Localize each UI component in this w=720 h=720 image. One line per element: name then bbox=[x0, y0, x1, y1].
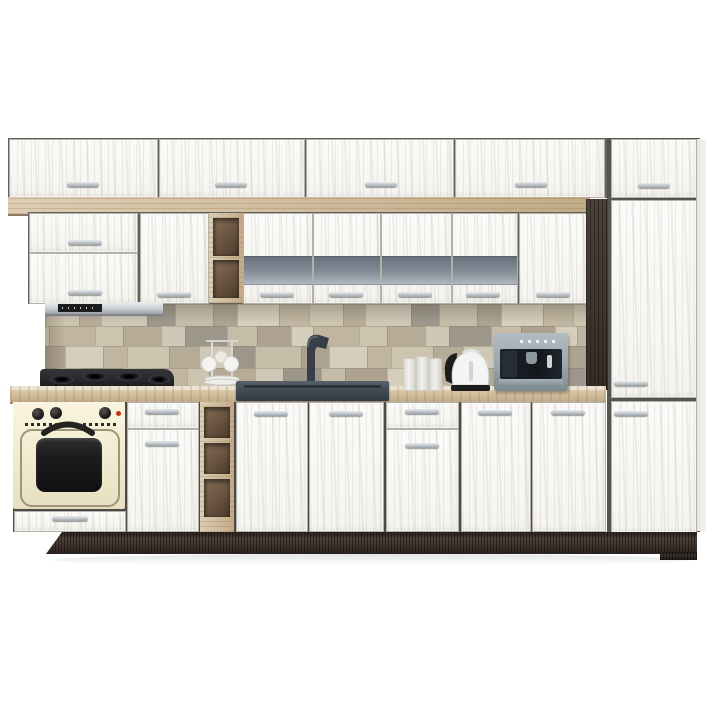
backsplash-tile bbox=[237, 304, 280, 327]
backsplash-tile bbox=[359, 326, 388, 347]
oven-knob bbox=[50, 407, 62, 419]
backsplash-tile bbox=[573, 304, 586, 327]
door-handle bbox=[260, 292, 294, 297]
base-shelf-cubby bbox=[204, 443, 230, 474]
coffee-machine-drip-tray bbox=[499, 379, 563, 386]
backsplash-tile bbox=[411, 304, 440, 327]
backsplash-tile bbox=[343, 304, 366, 327]
base-plain-door bbox=[532, 402, 606, 532]
canister bbox=[416, 356, 429, 391]
door-handle bbox=[405, 409, 439, 414]
coffee-machine-water-tank bbox=[502, 351, 517, 377]
plinth bbox=[46, 532, 697, 554]
door-handle bbox=[551, 410, 585, 415]
sink-cabinet-right-door bbox=[309, 402, 384, 532]
burner bbox=[50, 375, 74, 384]
backsplash-tile bbox=[127, 346, 170, 369]
door-handle bbox=[145, 409, 179, 414]
sink bbox=[236, 381, 389, 401]
door-handle bbox=[478, 410, 512, 415]
door-handle bbox=[68, 290, 102, 295]
backsplash-tile bbox=[387, 326, 426, 347]
upper-cabinet-door-1 bbox=[9, 139, 158, 198]
backsplash-tile bbox=[95, 326, 124, 347]
coffee-machine-group-head bbox=[526, 352, 537, 364]
coffee-machine-buttons bbox=[520, 339, 562, 345]
upper-cabinet-door-4 bbox=[455, 139, 605, 198]
floor-shadow bbox=[52, 554, 692, 566]
door-handle bbox=[398, 292, 432, 297]
door-handle bbox=[638, 183, 670, 188]
door-handle bbox=[254, 411, 288, 416]
oven-knob bbox=[99, 407, 111, 419]
oven-indicator-light bbox=[116, 411, 121, 416]
burner bbox=[82, 372, 108, 381]
door-handle bbox=[365, 182, 397, 187]
base-drawer-front bbox=[386, 402, 459, 429]
glass-insert bbox=[314, 256, 380, 285]
glass-insert bbox=[244, 256, 312, 285]
glass-insert bbox=[453, 256, 517, 285]
door-handle bbox=[614, 381, 648, 386]
burner bbox=[148, 375, 170, 384]
door-handle bbox=[614, 411, 648, 416]
backsplash-tile bbox=[175, 304, 214, 327]
canister bbox=[403, 358, 416, 391]
tall-unit-side-panel bbox=[696, 139, 706, 531]
kitchen-set-photo bbox=[0, 0, 720, 720]
backsplash-tile bbox=[501, 304, 544, 327]
wall-glass-door-2 bbox=[313, 213, 381, 304]
backsplash-tile bbox=[213, 304, 238, 327]
backsplash-tile bbox=[585, 368, 586, 388]
oven-base-drawer bbox=[14, 511, 126, 532]
niche-side-panel bbox=[586, 199, 608, 390]
base-drawer-front bbox=[127, 402, 199, 429]
wall-plain-door bbox=[519, 213, 587, 304]
oven-door-handle bbox=[39, 420, 97, 436]
wall-glass-door-3 bbox=[381, 213, 452, 304]
door-handle bbox=[157, 292, 191, 297]
door-handle bbox=[515, 182, 547, 187]
corner-wall-cabinet-upper-door bbox=[29, 213, 138, 253]
backsplash-tile bbox=[365, 304, 412, 327]
door-handle bbox=[215, 182, 247, 187]
backsplash-tile bbox=[577, 326, 586, 347]
tall-unit-top-door bbox=[611, 139, 697, 198]
wall-shelf-cubby bbox=[213, 218, 239, 256]
wall-single-door bbox=[140, 213, 209, 304]
backsplash-tile bbox=[565, 346, 586, 369]
sink-cabinet-left-door bbox=[236, 402, 308, 532]
oven-window bbox=[36, 438, 102, 492]
backsplash-tile bbox=[279, 304, 310, 327]
corner-wall-cabinet-lower-door bbox=[29, 253, 138, 304]
glass-insert bbox=[382, 256, 451, 285]
backsplash-tile bbox=[65, 346, 104, 369]
base-plain-door bbox=[461, 402, 531, 532]
backsplash-tile bbox=[255, 346, 302, 369]
backsplash-tile bbox=[439, 304, 478, 327]
backsplash-tile bbox=[103, 346, 128, 369]
backsplash-tile bbox=[257, 326, 292, 347]
backsplash-tile bbox=[161, 326, 186, 347]
hood-control-panel bbox=[58, 304, 102, 312]
base-shelf-cubby bbox=[204, 479, 230, 517]
sink-basin-edge bbox=[244, 385, 381, 388]
retro-oven bbox=[13, 402, 125, 509]
burner bbox=[116, 372, 142, 381]
door-handle bbox=[329, 411, 363, 416]
backsplash-tile bbox=[309, 304, 344, 327]
backsplash-tile bbox=[367, 346, 392, 369]
door-handle bbox=[405, 443, 439, 448]
wall-shelf-cubby bbox=[213, 260, 239, 298]
door-handle bbox=[52, 516, 88, 521]
coffee-machine-spout bbox=[547, 355, 552, 368]
tall-unit-bottom-door bbox=[611, 401, 697, 533]
backsplash-tile bbox=[543, 304, 574, 327]
backsplash-tile bbox=[123, 326, 162, 347]
backsplash-tile bbox=[477, 304, 502, 327]
wall-glass-door-1 bbox=[243, 213, 313, 304]
base-shelf-cubby bbox=[204, 407, 230, 438]
door-handle bbox=[329, 292, 363, 297]
door-handle bbox=[67, 182, 99, 187]
tall-unit-middle-door bbox=[611, 200, 697, 398]
upper-cabinet-door-3 bbox=[306, 139, 454, 198]
door-handle bbox=[68, 240, 102, 245]
upper-cabinet-door-2 bbox=[159, 139, 305, 198]
electric-kettle bbox=[439, 343, 495, 393]
door-handle bbox=[145, 441, 179, 446]
door-handle bbox=[536, 292, 570, 297]
wall-glass-door-4 bbox=[452, 213, 518, 304]
coffee-machine bbox=[494, 333, 568, 391]
oven-knob bbox=[32, 408, 44, 420]
door-handle bbox=[466, 292, 500, 297]
